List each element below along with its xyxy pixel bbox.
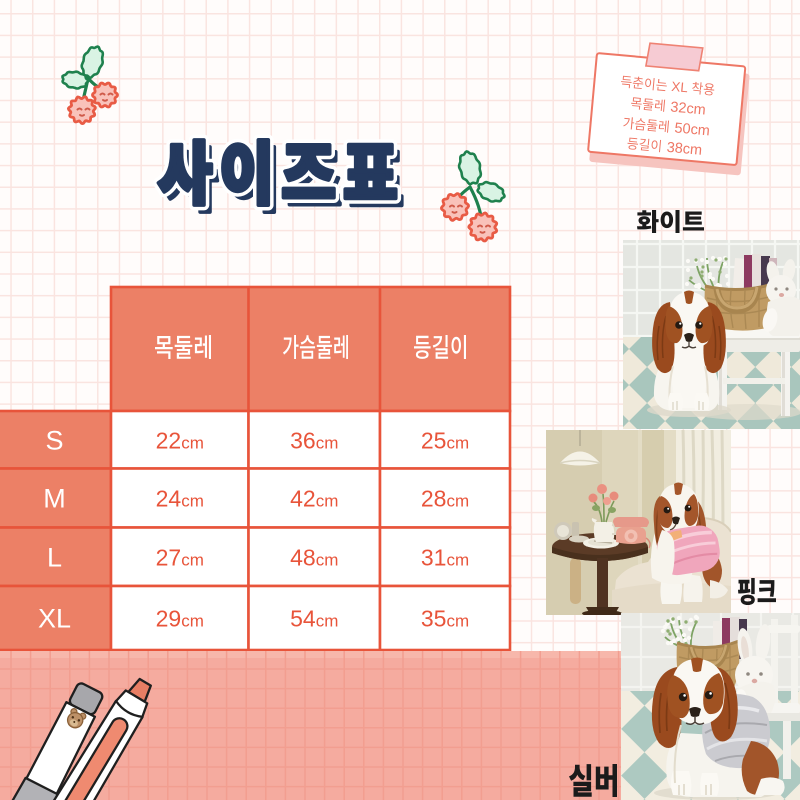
svg-text:XL: XL [671,79,689,95]
svg-text:S: S [45,425,63,455]
svg-text:38cm: 38cm [666,140,703,159]
svg-text:50cm: 50cm [674,120,711,139]
svg-text:32cm: 32cm [670,99,707,118]
svg-text:XL: XL [38,604,71,634]
svg-text:L: L [47,542,62,572]
svg-text:M: M [43,484,66,514]
